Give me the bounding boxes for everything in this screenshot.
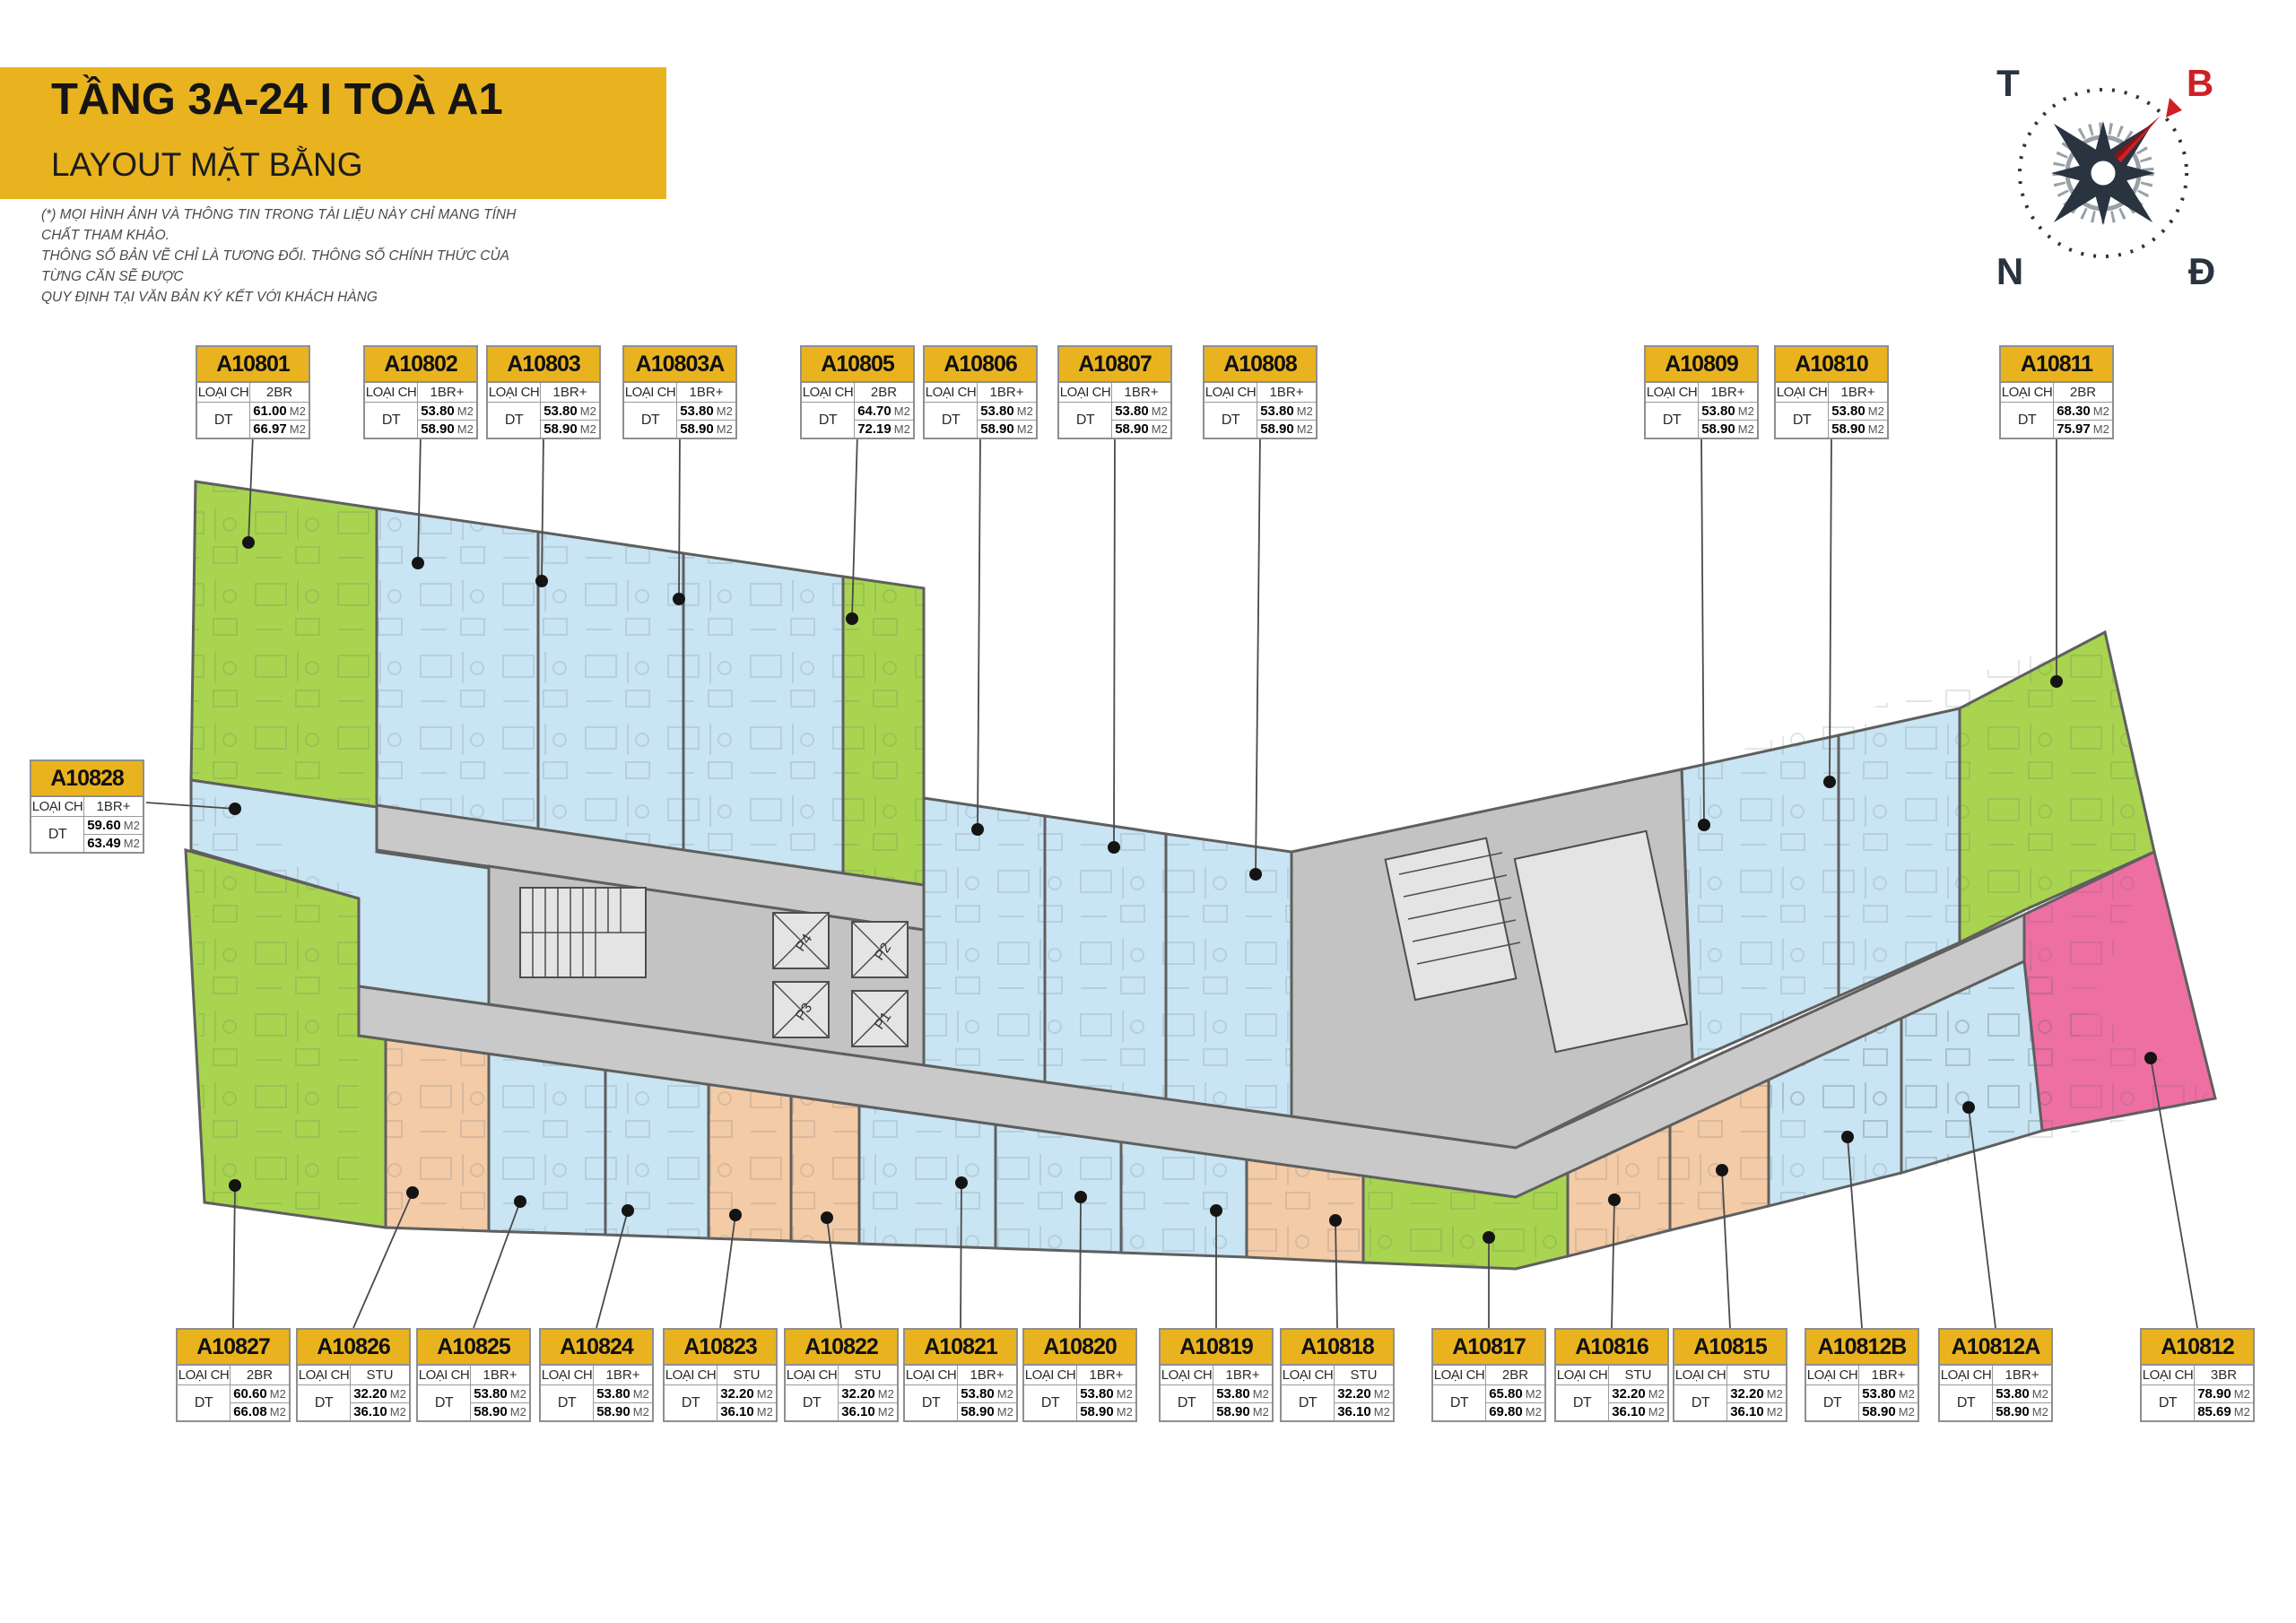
unit-type-label: LOẠI CH: [802, 383, 855, 402]
elevator-icon-p1: P1: [852, 991, 908, 1046]
unit-type-label: LOẠI CH: [541, 1366, 594, 1384]
unit-type-label: LOẠI CH: [786, 1366, 839, 1384]
unit-code-label: A10806: [925, 347, 1036, 383]
unit-area-1: 53.80M2: [978, 403, 1036, 420]
unit-area-2: 58.90M2: [978, 420, 1036, 438]
unit-type-label: LOẠI CH: [1205, 383, 1257, 402]
unit-area-label: DT: [541, 1385, 594, 1420]
title-banner: TẦNG 3A-24 I TOÀ A1 LAYOUT MẶT BẰNG: [0, 67, 666, 199]
leader-dot-a10827: [229, 1179, 241, 1192]
unit-type-label: LOẠI CH: [2001, 383, 2054, 402]
unit-area-label: DT: [1646, 403, 1699, 438]
unit-card-a10803: A10803 LOẠI CH 1BR+ DT 53.80M2 58.90M2: [486, 345, 601, 439]
unit-card-a10823: A10823 LOẠI CH STU DT 32.20M2 36.10M2: [663, 1328, 778, 1422]
unit-type-value: 1BR+: [1859, 1366, 1918, 1384]
leader-dot-a10821: [955, 1176, 968, 1189]
unit-area-1: 53.80M2: [1112, 403, 1170, 420]
unit-type-value: 1BR+: [84, 797, 143, 816]
unit-card-a10821: A10821 LOẠI CH 1BR+ DT 53.80M2 58.90M2: [903, 1328, 1018, 1422]
unit-code-label: A10812: [2142, 1330, 2253, 1366]
leader-dot-a10822: [821, 1211, 833, 1224]
unit-type-label: LOẠI CH: [665, 1366, 717, 1384]
unit-type-value: 1BR+: [978, 383, 1036, 402]
unit-card-a10822: A10822 LOẠI CH STU DT 32.20M2 36.10M2: [784, 1328, 899, 1422]
unit-card-a10827: A10827 LOẠI CH 2BR DT 60.60M2 66.08M2: [176, 1328, 291, 1422]
unit-type-value: STU: [1609, 1366, 1667, 1384]
elevator-icon-p3: P3: [773, 982, 829, 1037]
leader-dot-a10826: [406, 1186, 419, 1199]
unit-area-1: 53.80M2: [471, 1385, 529, 1402]
unit-area-2: 66.08M2: [230, 1402, 289, 1420]
unit-area-1: 53.80M2: [1213, 1385, 1272, 1402]
unit-type-value: 1BR+: [958, 1366, 1016, 1384]
unit-card-a10820: A10820 LOẠI CH 1BR+ DT 53.80M2 58.90M2: [1022, 1328, 1137, 1422]
unit-type-label: LOẠI CH: [1282, 1366, 1335, 1384]
unit-card-a10812: A10812 LOẠI CH 3BR DT 78.90M2 85.69M2: [2140, 1328, 2255, 1422]
unit-area-label: DT: [1806, 1385, 1859, 1420]
unit-code-label: A10821: [905, 1330, 1016, 1366]
leader-dot-a10820: [1074, 1191, 1087, 1203]
unit-type-value: 1BR+: [1213, 1366, 1272, 1384]
leader-dot-a10818: [1329, 1214, 1342, 1227]
unit-type-value: 1BR+: [1829, 383, 1887, 402]
unit-card-a10811: A10811 LOẠI CH 2BR DT 68.30M2 75.97M2: [1999, 345, 2114, 439]
unit-type-value: 1BR+: [541, 383, 599, 402]
unit-code-label: A10802: [365, 347, 476, 383]
unit-type-value: 1BR+: [594, 1366, 652, 1384]
unit-code-label: A10826: [298, 1330, 409, 1366]
unit-code-label: A10812A: [1940, 1330, 2051, 1366]
unit-area-label: DT: [925, 403, 978, 438]
unit-area-label: DT: [624, 403, 677, 438]
unit-area-2: 36.10M2: [839, 1402, 897, 1420]
unit-area-2: 58.90M2: [541, 420, 599, 438]
unit-type-label: LOẠI CH: [31, 797, 84, 816]
unit-area-1: 53.80M2: [594, 1385, 652, 1402]
unit-area-2: 69.80M2: [1486, 1402, 1544, 1420]
unit-area-1: 32.20M2: [839, 1385, 897, 1402]
unit-card-a10826: A10826 LOẠI CH STU DT 32.20M2 36.10M2: [296, 1328, 411, 1422]
unit-area-label: DT: [1674, 1385, 1727, 1420]
leader-dot-a10803: [535, 575, 548, 587]
unit-type-label: LOẠI CH: [624, 383, 677, 402]
unit-type-value: 1BR+: [677, 383, 735, 402]
leader-dot-a10825: [514, 1195, 526, 1208]
leader-dot-a10810: [1823, 776, 1836, 788]
unit-area-1: 59.60M2: [84, 817, 143, 834]
leader-dot-a10816: [1608, 1193, 1621, 1206]
unit-code-label: A10817: [1433, 1330, 1544, 1366]
unit-area-2: 58.90M2: [1213, 1402, 1272, 1420]
leader-dot-a10806: [971, 823, 984, 836]
unit-type-value: 1BR+: [418, 383, 476, 402]
unit-area-label: DT: [786, 1385, 839, 1420]
unit-code-label: A10827: [178, 1330, 289, 1366]
unit-type-label: LOẠI CH: [298, 1366, 351, 1384]
unit-card-a10818: A10818 LOẠI CH STU DT 32.20M2 36.10M2: [1280, 1328, 1395, 1422]
unit-type-value: STU: [351, 1366, 409, 1384]
leader-dot-a10805: [846, 612, 858, 625]
unit-area-2: 58.90M2: [1077, 1402, 1135, 1420]
unit-code-label: A10805: [802, 347, 913, 383]
unit-area-label: DT: [802, 403, 855, 438]
leader-dot-a10809: [1698, 819, 1710, 831]
unit-area-2: 58.90M2: [1829, 420, 1887, 438]
unit-area-1: 32.20M2: [1335, 1385, 1393, 1402]
compass-east-label: Đ: [2188, 250, 2215, 292]
unit-area-2: 58.90M2: [677, 420, 735, 438]
unit-area-1: 32.20M2: [717, 1385, 776, 1402]
unit-code-label: A10822: [786, 1330, 897, 1366]
leader-dot-a10803a: [673, 593, 685, 605]
unit-card-a10803a: A10803A LOẠI CH 1BR+ DT 53.80M2 58.90M2: [622, 345, 737, 439]
unit-area-1: 32.20M2: [1727, 1385, 1786, 1402]
unit-area-2: 58.90M2: [958, 1402, 1016, 1420]
unit-area-label: DT: [1940, 1385, 1993, 1420]
leader-dot-a10802: [412, 557, 424, 569]
unit-area-1: 32.20M2: [1609, 1385, 1667, 1402]
unit-type-value: 2BR: [250, 383, 309, 402]
unit-code-label: A10812B: [1806, 1330, 1918, 1366]
leader-dot-a10819: [1210, 1204, 1222, 1217]
page-subtitle: LAYOUT MẶT BẰNG: [51, 146, 362, 184]
unit-area-label: DT: [1282, 1385, 1335, 1420]
unit-type-value: 1BR+: [1112, 383, 1170, 402]
unit-card-a10812a: A10812A LOẠI CH 1BR+ DT 53.80M2 58.90M2: [1938, 1328, 2053, 1422]
unit-area-label: DT: [178, 1385, 230, 1420]
unit-card-a10815: A10815 LOẠI CH STU DT 32.20M2 36.10M2: [1673, 1328, 1787, 1422]
unit-area-2: 36.10M2: [1727, 1402, 1786, 1420]
unit-area-1: 65.80M2: [1486, 1385, 1544, 1402]
unit-area-2: 58.90M2: [471, 1402, 529, 1420]
leader-dot-a10823: [729, 1209, 742, 1221]
unit-type-label: LOẠI CH: [1776, 383, 1829, 402]
unit-type-label: LOẠI CH: [1059, 383, 1112, 402]
elevator-icon-p4: P4: [773, 913, 829, 968]
compass-north-label: B: [2187, 62, 2213, 104]
unit-code-label: A10819: [1161, 1330, 1272, 1366]
unit-area-2: 58.90M2: [1257, 420, 1316, 438]
disclaimer-line: (*) MỌI HÌNH ẢNH VÀ THÔNG TIN TRONG TÀI …: [41, 204, 544, 246]
unit-area-label: DT: [1556, 1385, 1609, 1420]
unit-area-2: 58.90M2: [594, 1402, 652, 1420]
unit-area-label: DT: [1024, 1385, 1077, 1420]
unit-area-2: 63.49M2: [84, 834, 143, 852]
unit-type-label: LOẠI CH: [178, 1366, 230, 1384]
unit-area-2: 58.90M2: [1993, 1402, 2051, 1420]
unit-area-label: DT: [197, 403, 250, 438]
unit-card-a10810: A10810 LOẠI CH 1BR+ DT 53.80M2 58.90M2: [1774, 345, 1889, 439]
unit-code-label: A10825: [418, 1330, 529, 1366]
leader-line-a10821: [961, 1183, 961, 1328]
unit-area-label: DT: [365, 403, 418, 438]
unit-area-2: 58.90M2: [1859, 1402, 1918, 1420]
unit-area-2: 36.10M2: [1335, 1402, 1393, 1420]
leader-dot-a10812b: [1841, 1131, 1854, 1143]
unit-area-2: 75.97M2: [2054, 420, 2112, 438]
unit-card-a10807: A10807 LOẠI CH 1BR+ DT 53.80M2 58.90M2: [1057, 345, 1172, 439]
unit-type-label: LOẠI CH: [1161, 1366, 1213, 1384]
compass-west-label: T: [1996, 62, 2020, 104]
unit-area-label: DT: [298, 1385, 351, 1420]
page-title: TẦNG 3A-24 I TOÀ A1: [51, 74, 503, 125]
unit-code-label: A10801: [197, 347, 309, 383]
unit-type-value: STU: [1727, 1366, 1786, 1384]
unit-type-label: LOẠI CH: [1674, 1366, 1727, 1384]
unit-area-2: 36.10M2: [1609, 1402, 1667, 1420]
unit-area-1: 53.80M2: [958, 1385, 1016, 1402]
unit-area-label: DT: [665, 1385, 717, 1420]
leader-line-a10803a: [679, 434, 680, 599]
unit-area-1: 53.80M2: [1859, 1385, 1918, 1402]
unit-area-label: DT: [31, 817, 84, 852]
unit-card-a10828: A10828 LOẠI CH 1BR+ DT 59.60M2 63.49M2: [30, 759, 144, 854]
unit-code-label: A10810: [1776, 347, 1887, 383]
unit-card-a10825: A10825 LOẠI CH 1BR+ DT 53.80M2 58.90M2: [416, 1328, 531, 1422]
unit-code-label: A10809: [1646, 347, 1757, 383]
unit-card-a10817: A10817 LOẠI CH 2BR DT 65.80M2 69.80M2: [1431, 1328, 1546, 1422]
unit-area-1: 53.80M2: [1993, 1385, 2051, 1402]
unit-card-a10812b: A10812B LOẠI CH 1BR+ DT 53.80M2 58.90M2: [1805, 1328, 1919, 1422]
compass-icon: T B N Đ: [1996, 62, 2215, 292]
unit-card-a10824: A10824 LOẠI CH 1BR+ DT 53.80M2 58.90M2: [539, 1328, 654, 1422]
stairs-icon: [520, 888, 646, 977]
unit-type-label: LOẠI CH: [365, 383, 418, 402]
unit-code-label: A10815: [1674, 1330, 1786, 1366]
unit-card-a10808: A10808 LOẠI CH 1BR+ DT 53.80M2 58.90M2: [1203, 345, 1318, 439]
unit-area-1: 60.60M2: [230, 1385, 289, 1402]
unit-type-value: 1BR+: [1077, 1366, 1135, 1384]
unit-card-a10801: A10801 LOẠI CH 2BR DT 61.00M2 66.97M2: [196, 345, 310, 439]
unit-area-label: DT: [1059, 403, 1112, 438]
unit-code-label: A10828: [31, 761, 143, 797]
leader-dot-a10817: [1483, 1231, 1495, 1244]
unit-card-a10802: A10802 LOẠI CH 1BR+ DT 53.80M2 58.90M2: [363, 345, 478, 439]
leader-dot-a10811: [2050, 675, 2063, 688]
leader-line-a10808: [1256, 434, 1260, 874]
leader-line-a10820: [1080, 1197, 1081, 1328]
unit-area-label: DT: [488, 403, 541, 438]
unit-area-1: 32.20M2: [351, 1385, 409, 1402]
unit-card-a10805: A10805 LOẠI CH 2BR DT 64.70M2 72.19M2: [800, 345, 915, 439]
unit-code-label: A10811: [2001, 347, 2112, 383]
unit-type-value: STU: [717, 1366, 776, 1384]
unit-type-label: LOẠI CH: [1433, 1366, 1486, 1384]
unit-type-value: 2BR: [230, 1366, 289, 1384]
leader-dot-a10807: [1108, 841, 1120, 854]
unit-type-label: LOẠI CH: [1024, 1366, 1077, 1384]
unit-type-value: 2BR: [855, 383, 913, 402]
unit-area-label: DT: [1161, 1385, 1213, 1420]
unit-area-1: 64.70M2: [855, 403, 913, 420]
unit-type-value: 1BR+: [1257, 383, 1316, 402]
leader-dot-a10824: [622, 1204, 634, 1217]
unit-type-label: LOẠI CH: [488, 383, 541, 402]
unit-card-a10819: A10819 LOẠI CH 1BR+ DT 53.80M2 58.90M2: [1159, 1328, 1274, 1422]
disclaimer-text: (*) MỌI HÌNH ẢNH VÀ THÔNG TIN TRONG TÀI …: [41, 204, 544, 308]
unit-type-label: LOẠI CH: [905, 1366, 958, 1384]
unit-area-label: DT: [1433, 1385, 1486, 1420]
disclaimer-line: THÔNG SỐ BẢN VẼ CHỈ LÀ TƯƠNG ĐỐI. THÔNG …: [41, 246, 544, 287]
unit-card-a10806: A10806 LOẠI CH 1BR+ DT 53.80M2 58.90M2: [923, 345, 1038, 439]
unit-type-label: LOẠI CH: [925, 383, 978, 402]
leader-dot-a10828: [229, 803, 241, 815]
leader-dot-a10812: [2144, 1052, 2157, 1064]
unit-area-label: DT: [2142, 1385, 2195, 1420]
unit-area-1: 68.30M2: [2054, 403, 2112, 420]
leader-dot-a10815: [1716, 1164, 1728, 1176]
leader-dot-a10812a: [1962, 1101, 1975, 1114]
unit-type-value: 1BR+: [1993, 1366, 2051, 1384]
unit-area-2: 36.10M2: [351, 1402, 409, 1420]
unit-type-value: 2BR: [2054, 383, 2112, 402]
unit-area-2: 66.97M2: [250, 420, 309, 438]
unit-type-value: STU: [1335, 1366, 1393, 1384]
unit-type-value: 2BR: [1486, 1366, 1544, 1384]
unit-area-label: DT: [2001, 403, 2054, 438]
unit-code-label: A10823: [665, 1330, 776, 1366]
unit-area-1: 53.80M2: [1257, 403, 1316, 420]
unit-type-label: LOẠI CH: [1806, 1366, 1859, 1384]
unit-type-label: LOẠI CH: [1556, 1366, 1609, 1384]
unit-code-label: A10803A: [624, 347, 735, 383]
floorplan-page: P1P2P3P4: [0, 0, 2296, 1623]
unit-type-value: STU: [839, 1366, 897, 1384]
leader-dot-a10801: [242, 536, 255, 549]
unit-area-1: 53.80M2: [541, 403, 599, 420]
unit-area-1: 78.90M2: [2195, 1385, 2253, 1402]
unit-type-value: 1BR+: [471, 1366, 529, 1384]
unit-area-2: 58.90M2: [1112, 420, 1170, 438]
unit-code-label: A10803: [488, 347, 599, 383]
disclaimer-line: QUY ĐỊNH TẠI VĂN BẢN KÝ KẾT VỚI KHÁCH HÀ…: [41, 287, 544, 308]
unit-area-2: 58.90M2: [1699, 420, 1757, 438]
unit-code-label: A10824: [541, 1330, 652, 1366]
leader-dot-a10808: [1249, 868, 1262, 881]
unit-type-label: LOẠI CH: [418, 1366, 471, 1384]
unit-area-2: 58.90M2: [418, 420, 476, 438]
unit-area-label: DT: [418, 1385, 471, 1420]
unit-type-label: LOẠI CH: [2142, 1366, 2195, 1384]
unit-type-label: LOẠI CH: [1646, 383, 1699, 402]
unit-type-value: 1BR+: [1699, 383, 1757, 402]
compass-south-label: N: [1996, 250, 2023, 292]
elevator-icon-p2: P2: [852, 922, 908, 977]
leader-line-a10807: [1114, 434, 1115, 847]
unit-area-1: 53.80M2: [1077, 1385, 1135, 1402]
unit-type-label: LOẠI CH: [197, 383, 250, 402]
unit-area-1: 53.80M2: [677, 403, 735, 420]
unit-area-label: DT: [1776, 403, 1829, 438]
leader-line-a10806: [978, 434, 980, 829]
unit-card-a10816: A10816 LOẠI CH STU DT 32.20M2 36.10M2: [1554, 1328, 1669, 1422]
unit-area-1: 61.00M2: [250, 403, 309, 420]
unit-code-label: A10807: [1059, 347, 1170, 383]
unit-area-1: 53.80M2: [1699, 403, 1757, 420]
unit-area-label: DT: [1205, 403, 1257, 438]
unit-code-label: A10816: [1556, 1330, 1667, 1366]
unit-area-2: 36.10M2: [717, 1402, 776, 1420]
unit-code-label: A10820: [1024, 1330, 1135, 1366]
unit-code-label: A10818: [1282, 1330, 1393, 1366]
unit-code-label: A10808: [1205, 347, 1316, 383]
unit-type-value: 3BR: [2195, 1366, 2253, 1384]
unit-area-2: 72.19M2: [855, 420, 913, 438]
unit-area-2: 85.69M2: [2195, 1402, 2253, 1420]
unit-type-label: LOẠI CH: [1940, 1366, 1993, 1384]
unit-area-1: 53.80M2: [418, 403, 476, 420]
unit-area-1: 53.80M2: [1829, 403, 1887, 420]
unit-area-label: DT: [905, 1385, 958, 1420]
unit-card-a10809: A10809 LOẠI CH 1BR+ DT 53.80M2 58.90M2: [1644, 345, 1759, 439]
